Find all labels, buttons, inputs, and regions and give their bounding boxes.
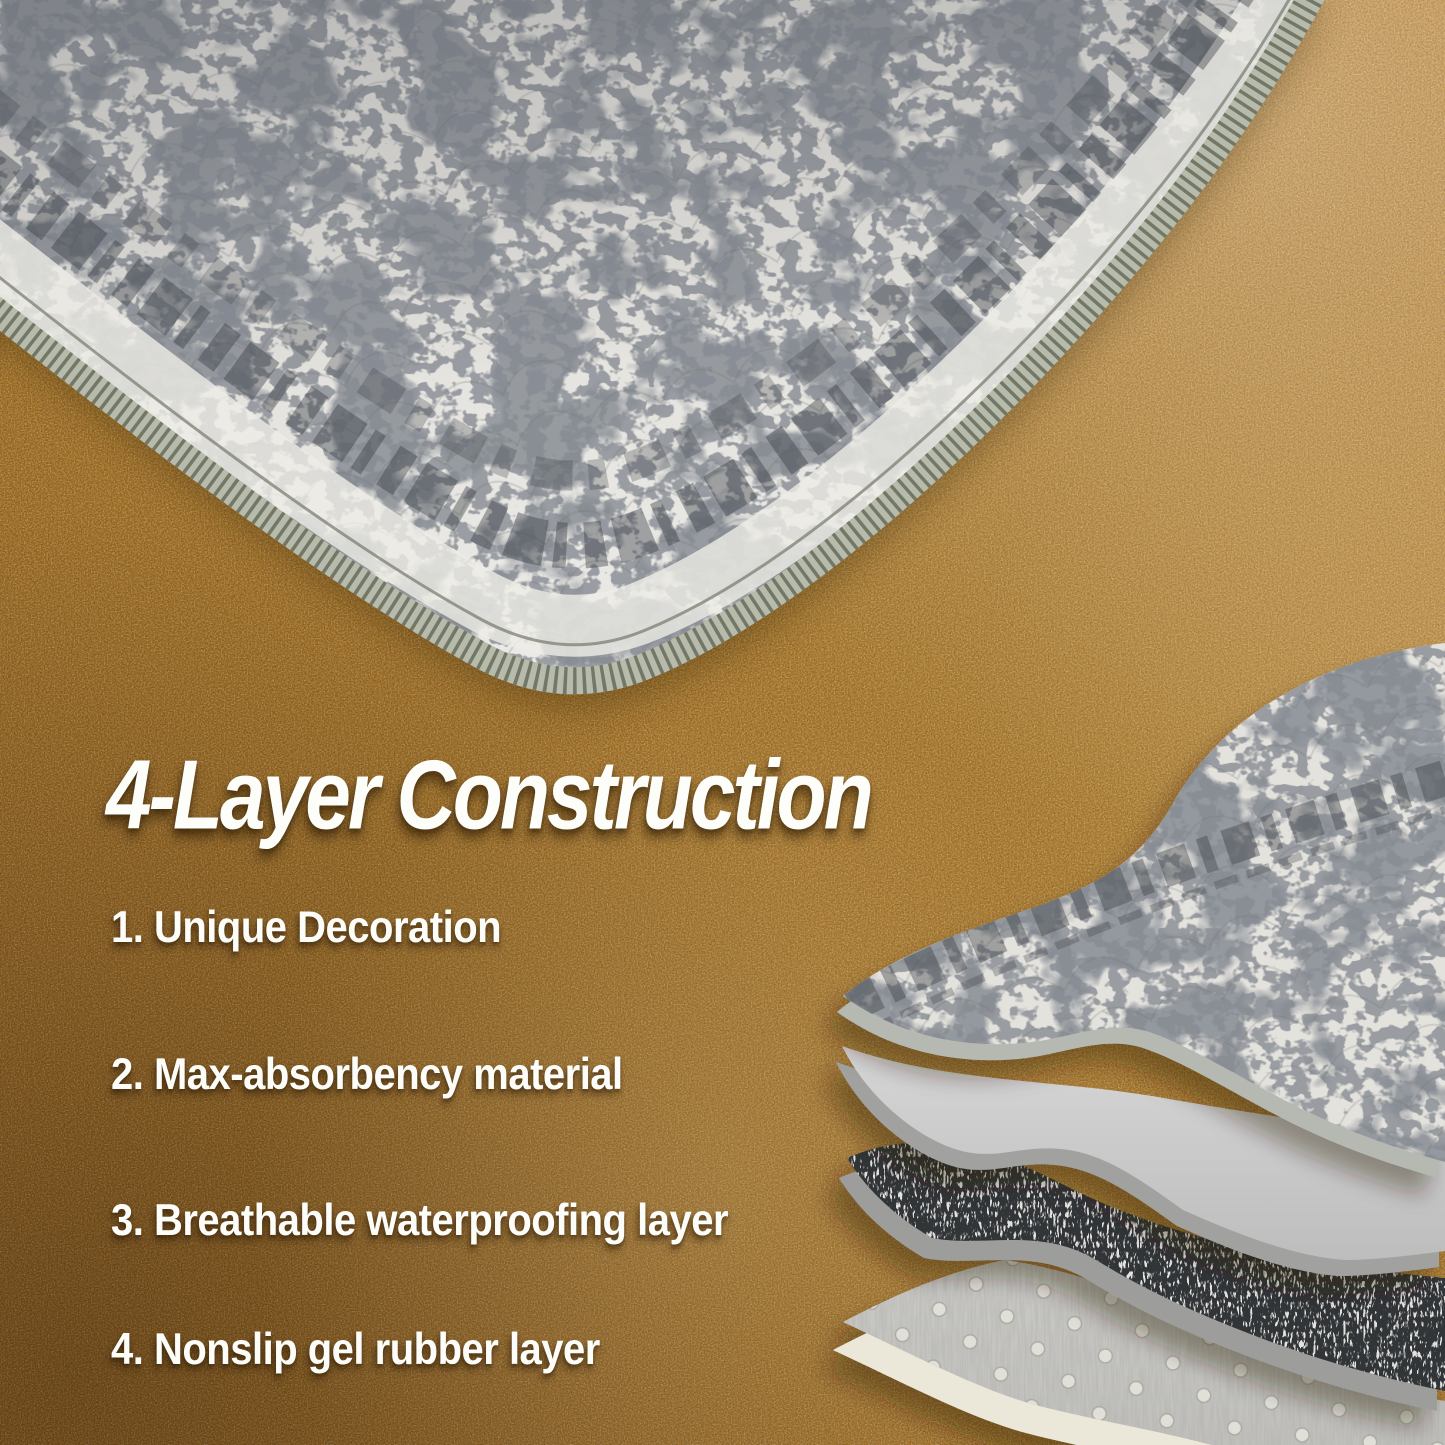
headline: 4-Layer Construction (106, 747, 871, 845)
product-infographic: 4-Layer Construction 1. Unique Decoratio… (0, 0, 1445, 1445)
feature-item-1: 1. Unique Decoration (111, 904, 501, 951)
text-overlay: 4-Layer Construction 1. Unique Decoratio… (0, 0, 1445, 1445)
feature-item-4: 4. Nonslip gel rubber layer (111, 1326, 600, 1373)
feature-item-3: 3. Breathable waterproofing layer (111, 1197, 728, 1244)
feature-item-2: 2. Max-absorbency material (111, 1051, 623, 1098)
